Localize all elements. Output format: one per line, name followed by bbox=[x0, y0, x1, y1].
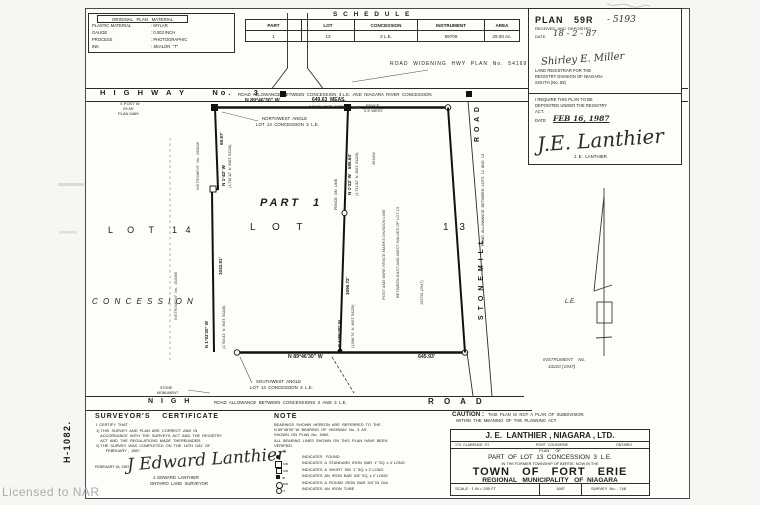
instrument-293648: INSTRUMENT No. 293648 bbox=[196, 142, 200, 190]
monument-marker bbox=[342, 210, 347, 215]
stone-monument-label: STONE bbox=[160, 386, 172, 390]
north-arrow bbox=[594, 188, 612, 356]
legend-sub: IT bbox=[283, 490, 286, 493]
plan-number-label: PLAN 59R bbox=[535, 15, 594, 25]
certificate-intro: I CERTIFY THAT : bbox=[96, 423, 130, 427]
nigh-word-label: N I G H bbox=[148, 398, 192, 406]
stamp-title: ORIGINAL PLAN MATERIAL bbox=[97, 15, 188, 23]
note-title: NOTE bbox=[274, 413, 297, 421]
footer-divider bbox=[581, 484, 582, 495]
lot-14-word: L O T bbox=[108, 225, 160, 235]
stone-monument-label: MONUMENT bbox=[157, 391, 178, 395]
firm-address: 173 CLARENCE ST. bbox=[455, 443, 490, 447]
legend-text: INDICATES A SHORT SIB 1" SQ. x 2' LONG bbox=[302, 468, 383, 472]
schedule-cell: 59709 bbox=[418, 31, 485, 42]
mid-bearing1-label: N 1°22' W 586.64' bbox=[347, 154, 352, 195]
west-boundary bbox=[212, 108, 218, 353]
legend-text: INDICATES AN IRON TUBE bbox=[302, 487, 354, 491]
stonemill-name-label: S T O N E M I L L bbox=[478, 239, 486, 320]
west-seg1-label: 68.87' bbox=[219, 132, 224, 145]
note-paragraph: SHOWN ON PLAN No. 5469. bbox=[274, 433, 329, 437]
nigh-allowance-label: ROAD ALLOWANCE BETWEEN CONCESSIONS 2 AND… bbox=[214, 400, 347, 405]
schedule-cell: 29.00 Ac. bbox=[485, 31, 520, 42]
schedule-cell: 1 bbox=[246, 31, 302, 42]
certificate-role: ONTARIO LAND SURVEYOR bbox=[150, 482, 208, 487]
stamp-key: PLASTIC MATERIAL bbox=[92, 24, 131, 29]
date-label: DATE bbox=[535, 35, 545, 40]
certificate-item: FEBRUARY , 1987 . bbox=[96, 449, 142, 453]
nw-angle-label: NORTHWEST ANGLE bbox=[262, 116, 307, 121]
certificate-title: SURVEYOR'S CERTIFICATE bbox=[95, 413, 219, 421]
scan-smudge bbox=[58, 183, 84, 186]
firm-address: ONTARIO bbox=[616, 443, 632, 447]
legend-text: INDICATES AN IRON BAR 5/8" SQ. x 2' LONG bbox=[302, 474, 388, 478]
sw-angle-label: LOT 13 CONCESSION 3 L.E. bbox=[250, 385, 313, 390]
schedule-cell: 3 L.E. bbox=[355, 31, 418, 42]
le-label: L.E. bbox=[565, 299, 576, 306]
require-statement: ACT. bbox=[535, 110, 544, 115]
nigh-road-word: R O A D bbox=[428, 397, 486, 406]
south-distance-label: 645.93' bbox=[418, 355, 435, 361]
mid-bearing2-label: N 1°06'40" W bbox=[337, 320, 342, 347]
north-bearing-label: N 89°46'30" W bbox=[245, 99, 280, 105]
registrar-title: SOUTH (No. 59) bbox=[535, 81, 566, 86]
instrument-43220: INSTRUMENT No. bbox=[543, 357, 585, 362]
stamp-val: : SEALON "T" bbox=[151, 45, 178, 50]
material-stamp: ORIGINAL PLAN MATERIAL PLASTIC MATERIAL … bbox=[88, 13, 235, 53]
legend-sib-symbol bbox=[275, 461, 282, 468]
note-section: NOTE BEARINGS SHOWN HEREON ARE REFERRED … bbox=[266, 413, 441, 495]
mid-seg2-label: 1096.72' bbox=[345, 277, 350, 295]
watermark: Licensed to NAR bbox=[2, 485, 100, 499]
lot-13-word: L O T bbox=[250, 222, 309, 234]
fence-west-label: 2.5' WEST bbox=[364, 109, 383, 114]
schedule-header: LOT bbox=[302, 20, 355, 31]
date2-label: DATE bbox=[535, 119, 546, 124]
legend-it-symbol bbox=[276, 488, 282, 494]
legend-text: INDICATES A STANDARD IRON BAR 1" SQ. x 4… bbox=[302, 461, 405, 465]
west-ref1-label: (1,730.32' N INST. 54228) bbox=[228, 145, 232, 188]
require-statement: DEPOSITED UNDER THE REGISTRY bbox=[535, 104, 607, 109]
pencil-scribble bbox=[607, 3, 650, 7]
surveyor-big-signature: J.E. Lanthier bbox=[536, 125, 664, 157]
surveyors-certificate: SURVEYOR'S CERTIFICATE I CERTIFY THAT : … bbox=[95, 413, 265, 495]
lot-13-number: 1 3 bbox=[443, 222, 469, 234]
legend-text: INDICATES A ROUND IRON BAR 3/4" IN DIA. bbox=[302, 481, 389, 485]
stonemill-allowance-label: ROAD ALLOWANCE BETWEEN LOTS 12 AND 13 bbox=[481, 154, 485, 246]
mid-ref2-label: (1,096.74' N INST. 54229) bbox=[351, 305, 355, 348]
schedule-title: S C H E D U L E bbox=[333, 11, 411, 18]
schedule-cell: 13 bbox=[302, 31, 355, 42]
year-label: 1987 bbox=[556, 487, 565, 492]
caution-section: CAUTION : THIS PLAN IS NOT A PLAN OF SUB… bbox=[452, 411, 682, 427]
nw-angle-label: LOT 13 CONCESSION 3 L.E. bbox=[256, 122, 319, 127]
division-note: BETWEEN EAST AND WEST HALVES OF LOT 13 bbox=[396, 207, 401, 298]
instrument-363464: 363464 bbox=[372, 152, 376, 165]
schedule-header: PART bbox=[246, 20, 302, 31]
legend-ib-symbol bbox=[276, 475, 280, 479]
south-bearing-label: N 89°46'30" W bbox=[288, 355, 323, 361]
division-line bbox=[340, 108, 348, 353]
west-ref2-label: (1,703.81' N INST. 54228) bbox=[222, 306, 226, 349]
lot-14-number: 1 4 bbox=[172, 225, 194, 235]
concession-label: C O N C E S S I O N bbox=[92, 297, 194, 306]
surveyor-name: J. E. LANTHIER bbox=[574, 154, 607, 159]
north-instrument-label: 649.56' INST. 54228 bbox=[309, 105, 345, 109]
stamp-val: : PHOTOGRAPHIC bbox=[151, 38, 187, 43]
note-paragraph: VERIFIED bbox=[274, 444, 292, 448]
legend-text: INDICATES FOUND bbox=[302, 455, 340, 459]
plan-number-handwritten: - 5193 bbox=[607, 15, 636, 25]
instrument-163791: 163791 (1947) bbox=[420, 280, 424, 305]
title-block-footer: SCALE : 1 IN = 200 FT 1987 SURVEY No. - … bbox=[450, 483, 650, 496]
monument-marker bbox=[466, 91, 472, 97]
legend-sub: SIB bbox=[283, 470, 288, 473]
mid-ref1-label: (1,731.52' N INST. 54229) bbox=[355, 153, 359, 196]
stamp-key: GAUGE bbox=[92, 31, 107, 36]
west-bearing2-label: N 1°03'30" W bbox=[204, 321, 209, 348]
survey-number: SURVEY No. - 748 bbox=[591, 487, 626, 492]
stamp-val: : 0.003 INCH bbox=[151, 31, 175, 36]
scale-label: SCALE : 1 IN = 200 FT bbox=[455, 487, 496, 492]
registrar-signature: Shirley E. Miller bbox=[541, 51, 625, 68]
legend-found-symbol bbox=[276, 455, 280, 459]
caution-text: WITHIN THE MEANING OF THE PLANNING ACT. bbox=[456, 419, 557, 424]
post-note: PLAN 5469 bbox=[118, 112, 138, 117]
stamp-key: INK bbox=[92, 45, 99, 50]
firm-name: J. E. LANTHIER , NIAGARA , LTD. bbox=[451, 431, 649, 440]
instrument-43220: 43220 (1947) bbox=[548, 364, 575, 369]
fence-on-line-label: FENCE ON LINE bbox=[334, 179, 338, 210]
title-block: J. E. LANTHIER , NIAGARA , LTD. 173 CLAR… bbox=[450, 429, 650, 485]
legend-sub: SIB bbox=[283, 463, 288, 466]
schedule-table: S C H E D U L E PART LOT CONCESSION INST… bbox=[245, 13, 520, 43]
registry-panel: PLAN 59R - 5193 RECEIVED AND DEPOSITED D… bbox=[528, 8, 682, 165]
monument-marker bbox=[210, 186, 216, 192]
footer-divider bbox=[539, 484, 540, 495]
plan-of-label: PLAN OF bbox=[451, 449, 649, 453]
certificate-date: FEBRUARY 16, 1987 bbox=[95, 465, 129, 469]
legend-sub: IB bbox=[282, 477, 285, 480]
division-note: POST AND WIRE FENCE MARKS DIVISION LINE bbox=[382, 209, 387, 300]
stamp-val: : MYLAR bbox=[151, 24, 168, 29]
north-distance-label: 649.63 MEAS. bbox=[312, 98, 346, 104]
scan-smudge bbox=[59, 231, 77, 234]
part-of-lot-line: PART OF LOT 13 CONCESSION 3 L.E. bbox=[451, 454, 649, 461]
old-fence-dashed bbox=[332, 357, 354, 393]
date-handwritten: 18 - 2 - 87 bbox=[553, 30, 597, 40]
legend-short-sib-symbol bbox=[276, 468, 282, 474]
legend-sub: RIB bbox=[283, 483, 288, 486]
schedule-header: INSTRUMENT bbox=[418, 20, 485, 31]
caution-text: THIS PLAN IS NOT A PLAN OF SUBDIVISION bbox=[488, 413, 584, 418]
stamp-key: PROCESS bbox=[92, 38, 112, 43]
panel-divider bbox=[529, 93, 681, 94]
schedule-header: AREA bbox=[485, 20, 520, 31]
monument-marker bbox=[234, 350, 240, 356]
part-1-label: PART 1 bbox=[260, 197, 322, 210]
road-widening-label: ROAD WIDENING HWY PLAN No. 54169 bbox=[390, 62, 527, 68]
scanned-survey-plan: ORIGINAL PLAN MATERIAL PLASTIC MATERIAL … bbox=[0, 0, 760, 505]
sw-angle-label: SOUTHWEST ANGLE bbox=[256, 379, 301, 384]
margin-code: H-1082. bbox=[62, 420, 72, 463]
west-bearing1-label: N 1°42' W bbox=[221, 165, 226, 186]
stonemill-road-word: R O A D bbox=[474, 106, 482, 142]
date2-handwritten: FEB 16, 1987 bbox=[553, 115, 610, 124]
schedule-header: CONCESSION bbox=[355, 20, 418, 31]
instrument-102088: INSTRUMENT No. 102088 bbox=[174, 272, 178, 320]
highway-label: H I G H W A Y No. 3 bbox=[100, 89, 261, 98]
west-seg2-label: 1043.81' bbox=[218, 257, 223, 275]
certificate-signature: J Edward Lanthier bbox=[127, 445, 286, 476]
firm-address: PORT COLBORNE bbox=[536, 443, 568, 447]
